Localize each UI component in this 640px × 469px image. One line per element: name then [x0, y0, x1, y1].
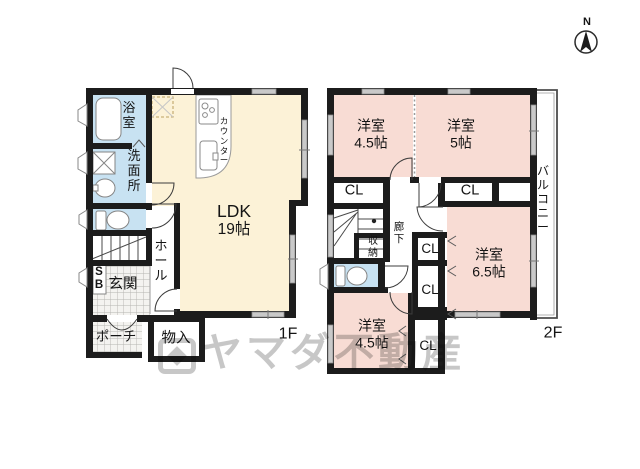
room-65-size: 6.5帖 [472, 265, 505, 280]
room-5-label: 洋室 [447, 119, 475, 134]
bathtub-icon [96, 98, 121, 140]
compass-icon [575, 31, 597, 53]
porch-label: ポーチ [96, 330, 137, 344]
closet-top-right-label: CL [461, 183, 480, 198]
room-5-size: 5帖 [450, 136, 472, 151]
balcony-label: バルコニー [537, 165, 550, 235]
room-65-label: 洋室 [475, 248, 503, 263]
closet-mid-lower-label: CL [421, 283, 438, 297]
closet-top-left-label: CL [345, 183, 364, 198]
floor2-label: 2F [544, 326, 563, 343]
stove-icon [199, 99, 218, 124]
room-5 [416, 95, 530, 177]
compass-north-label: N [583, 17, 591, 29]
room-45top-size: 4.5帖 [354, 136, 387, 151]
toilet1-tank [96, 211, 106, 230]
closet-mid-upper-label: CL [421, 242, 438, 256]
room-45top-label: 洋室 [357, 119, 385, 134]
entrance-label: 玄関 [109, 277, 138, 292]
storage-2f-label: 収納 [368, 236, 379, 259]
basin-tap [93, 185, 98, 191]
stairs-1f [92, 236, 151, 260]
hall-label: ホール [154, 238, 168, 283]
shoe-box-label: SB [93, 266, 105, 293]
ldk-label: LDK [217, 202, 251, 220]
toilet2-tank [336, 266, 345, 286]
room-45bottom-label: 洋室 [358, 319, 386, 334]
washroom-label: 洗面所 [127, 148, 141, 193]
floor1-label: 1F [279, 327, 298, 344]
floorplan-canvas: 浴室 洗面所 ホール SB 玄関 ポーチ 物入 LDK 19帖 カウンター 1F… [0, 0, 640, 469]
toilet2-bowl [347, 267, 367, 285]
closet-bottom-label: CL [419, 339, 436, 353]
hallway-label: 廊下 [393, 221, 404, 245]
storage-1f-label: 物入 [162, 331, 191, 346]
toilet1-bowl [107, 211, 129, 229]
ldk-size-label: 19帖 [218, 222, 251, 238]
counter-label: カウンター [219, 117, 228, 166]
bath-label: 浴室 [122, 100, 136, 130]
room-45bottom-size: 4.5帖 [355, 336, 388, 351]
